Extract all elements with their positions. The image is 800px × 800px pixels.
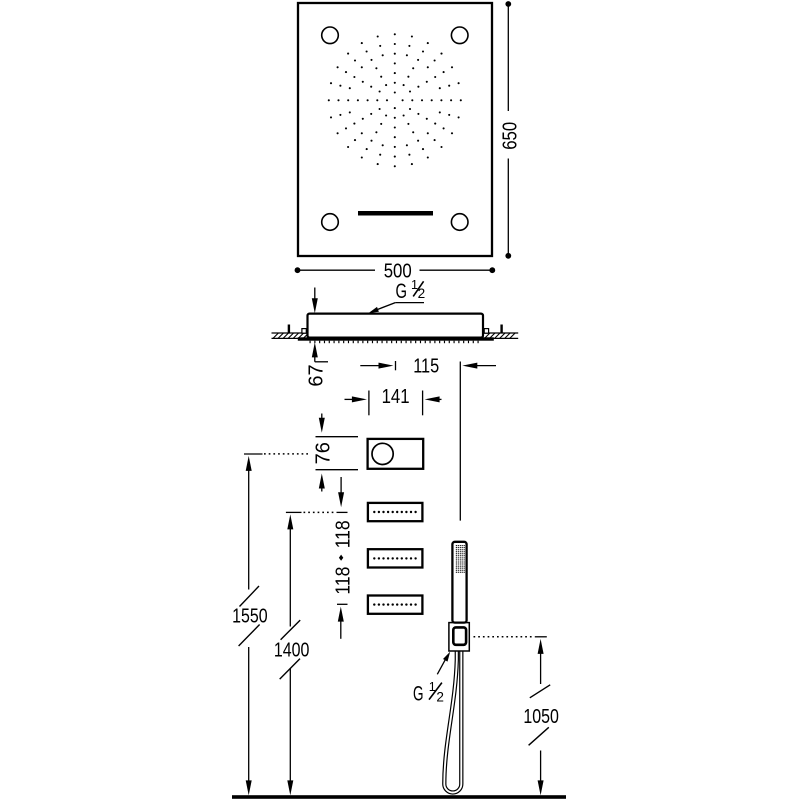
svg-text:1050: 1050: [523, 706, 559, 728]
svg-text:1400: 1400: [274, 640, 310, 662]
svg-text:2: 2: [418, 286, 426, 301]
svg-text:118: 118: [332, 520, 354, 548]
svg-text:2: 2: [436, 689, 444, 704]
svg-text:1550: 1550: [232, 606, 268, 628]
svg-text:500: 500: [384, 260, 412, 282]
svg-text:115: 115: [413, 356, 439, 378]
svg-text:67: 67: [306, 364, 328, 386]
svg-text:76: 76: [313, 442, 335, 464]
svg-text:650: 650: [500, 122, 522, 150]
svg-text:141: 141: [382, 386, 410, 408]
svg-text:G: G: [413, 683, 424, 706]
svg-text:118: 118: [332, 567, 354, 595]
svg-text:G: G: [396, 280, 408, 303]
